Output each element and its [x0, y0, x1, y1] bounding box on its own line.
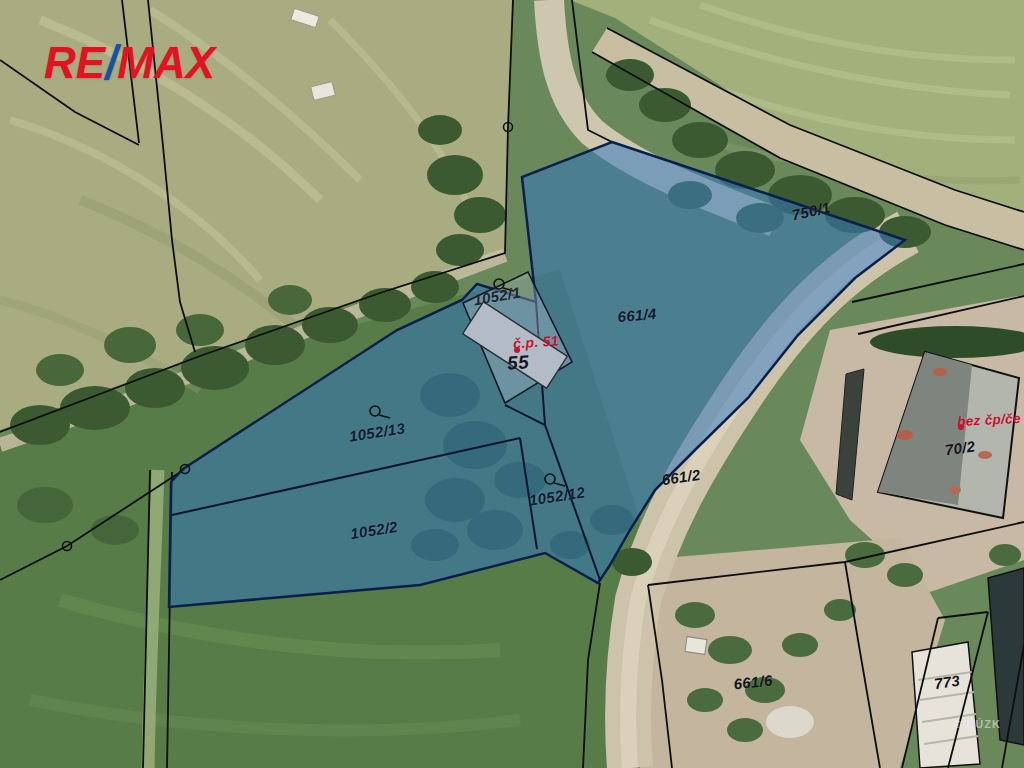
shrub	[887, 563, 923, 587]
parcel-label-661-4: 661/4	[617, 305, 657, 325]
tree	[672, 122, 728, 158]
remax-logo: RE/MAX	[44, 38, 215, 88]
tree	[17, 487, 73, 523]
aerial-map-image	[0, 0, 1024, 768]
shrub	[687, 688, 723, 712]
white-pile	[766, 706, 814, 738]
roof-patch	[978, 451, 992, 459]
logo-slash: /	[105, 36, 117, 90]
logo-max: MAX	[117, 38, 215, 88]
tree	[36, 354, 84, 386]
tree	[91, 515, 139, 545]
shrub	[708, 636, 752, 664]
tree	[176, 314, 224, 346]
tree	[359, 288, 411, 322]
parcel-label-773: 773	[933, 672, 961, 692]
roof-patch	[933, 368, 947, 376]
cadastral-map-screenshot: RE/MAX 1052/1 661/4 750/1 1052/13 1052/2…	[0, 0, 1024, 768]
cuzk-watermark: © ČÚZK	[953, 718, 1001, 730]
tree	[181, 346, 249, 390]
tree	[418, 115, 462, 145]
shrub	[675, 602, 715, 628]
tree	[245, 325, 305, 365]
small-shed	[685, 637, 707, 655]
roof-patch	[897, 430, 913, 440]
shrub	[727, 718, 763, 742]
tree	[454, 197, 506, 233]
tree	[302, 307, 358, 343]
tree	[268, 285, 312, 315]
shrub	[782, 633, 818, 657]
tree	[60, 386, 130, 430]
roof-patch	[949, 486, 961, 494]
house-number-55: 55	[506, 351, 529, 374]
white-building-773	[912, 642, 980, 768]
shrub	[989, 544, 1021, 566]
building-label-cp-51: č.p. 51	[513, 332, 560, 351]
tree	[427, 155, 483, 195]
tree	[104, 327, 156, 363]
logo-re: RE	[44, 38, 105, 88]
